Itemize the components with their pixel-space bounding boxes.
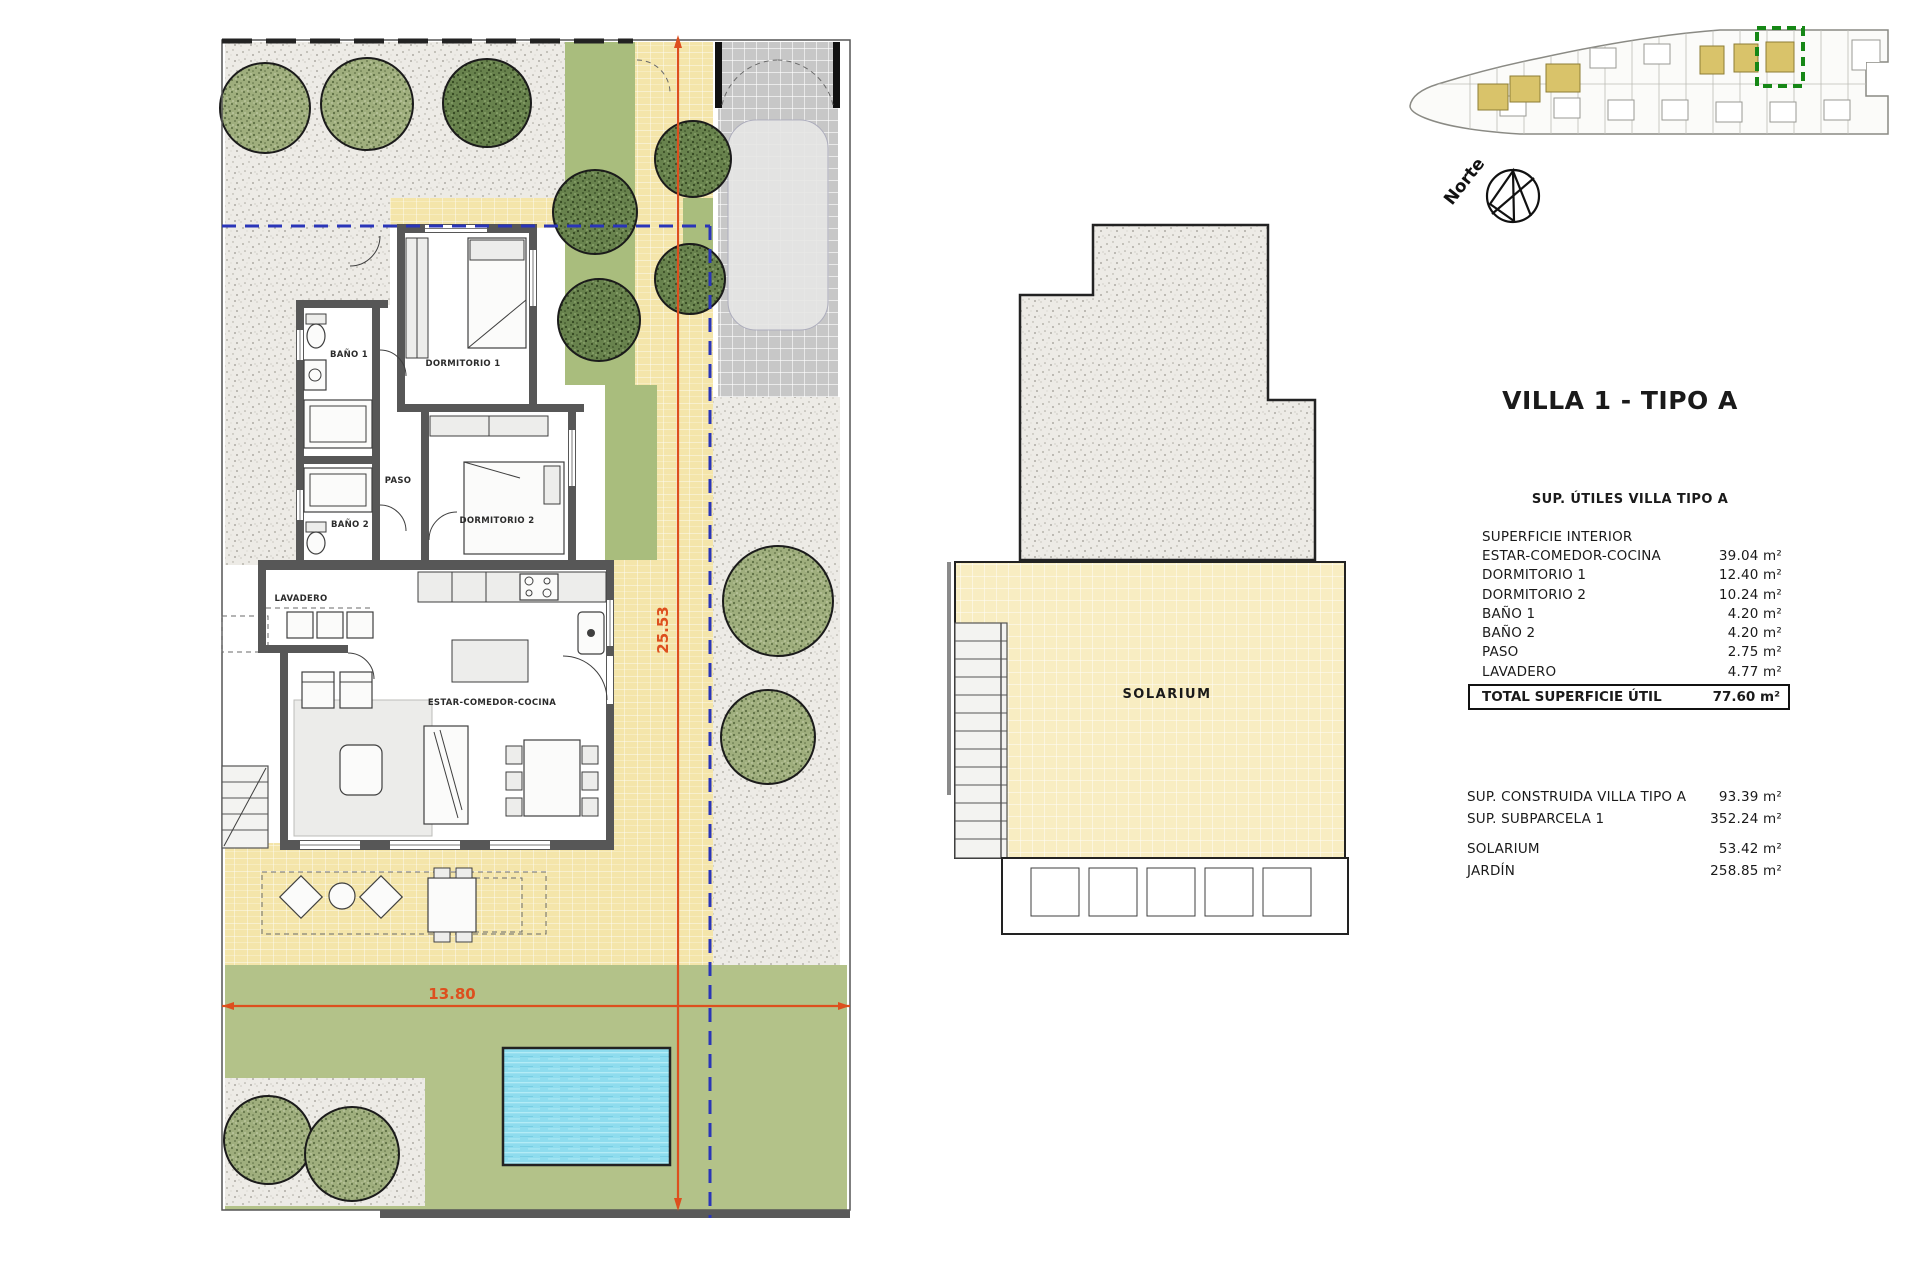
tree [655,121,731,197]
section-label: SUPERFICIE INTERIOR [1468,527,1790,546]
floor-plan: 25.53 13.80 BAÑO 1 DORMITORIO 1 PASO BAÑ… [220,35,850,1218]
room-label-bano1: BAÑO 1 [330,349,368,360]
room-label-bano2: BAÑO 2 [331,519,369,530]
area-row: PASO2.75 m² [1468,643,1790,662]
tree [443,59,531,147]
tree [655,244,725,314]
tree [220,63,310,153]
summary-table: SUP. CONSTRUIDA VILLA TIPO A93.39 m² SUP… [1455,786,1790,882]
room-label-dormitorio1: DORMITORIO 1 [426,359,501,369]
area-row: DORMITORIO 210.24 m² [1468,585,1790,604]
area-row: BAÑO 24.20 m² [1468,623,1790,642]
tree [553,170,637,254]
planting-strip-2 [605,385,657,560]
room-label-lavadero: LAVADERO [274,594,327,604]
tree [558,279,640,361]
room-label-dormitorio2: DORMITORIO 2 [460,516,535,526]
area-row: LAVADERO4.77 m² [1468,662,1790,681]
tree [305,1107,399,1201]
north-arrow: Norte [1440,154,1539,222]
room-label-estar: ESTAR-COMEDOR-COCINA [428,698,556,708]
summary-row: SUP. CONSTRUIDA VILLA TIPO A93.39 m² [1455,786,1790,808]
gravel-left-strip [225,198,300,565]
areas-table-header: SUP. ÚTILES VILLA TIPO A [1490,492,1770,507]
tree [721,690,815,784]
summary-row: SOLARIUM53.42 m² [1455,838,1790,860]
solarium-plan: SOLARIUM [949,225,1348,934]
pool [503,1048,670,1165]
tree [723,546,833,656]
area-row: ESTAR-COMEDOR-COCINA39.04 m² [1468,546,1790,565]
solarium-deck [955,562,1345,858]
car-outline [728,120,828,330]
areas-table: SUPERFICIE INTERIOR ESTAR-COMEDOR-COCINA… [1468,527,1790,710]
summary-row: SUP. SUBPARCELA 1352.24 m² [1455,808,1790,830]
pergola [1002,858,1348,934]
site-location-map: Norte [1410,28,1888,222]
solarium-label: SOLARIUM [1122,687,1211,702]
roof-stairs [955,623,1007,858]
gravel-right-strip [713,397,840,965]
architectural-sheet: 25.53 13.80 BAÑO 1 DORMITORIO 1 PASO BAÑ… [0,0,1920,1280]
area-row: BAÑO 14.20 m² [1468,604,1790,623]
area-row: DORMITORIO 112.40 m² [1468,566,1790,585]
summary-row: JARDÍN258.85 m² [1455,860,1790,882]
page-title: VILLA 1 - TIPO A [1480,386,1760,415]
tree [224,1096,312,1184]
total-row: TOTAL SUPERFICIE ÚTIL77.60 m² [1468,684,1790,710]
roof-area [1020,225,1315,560]
room-label-paso: PASO [385,476,412,486]
dimension-width: 13.80 [428,985,475,1003]
north-label: Norte [1440,154,1489,209]
tree [321,58,413,150]
rear-wall [380,1210,850,1218]
parking-area [715,42,840,397]
dimension-height: 25.53 [654,606,672,653]
gravel-above-bath [300,198,390,305]
